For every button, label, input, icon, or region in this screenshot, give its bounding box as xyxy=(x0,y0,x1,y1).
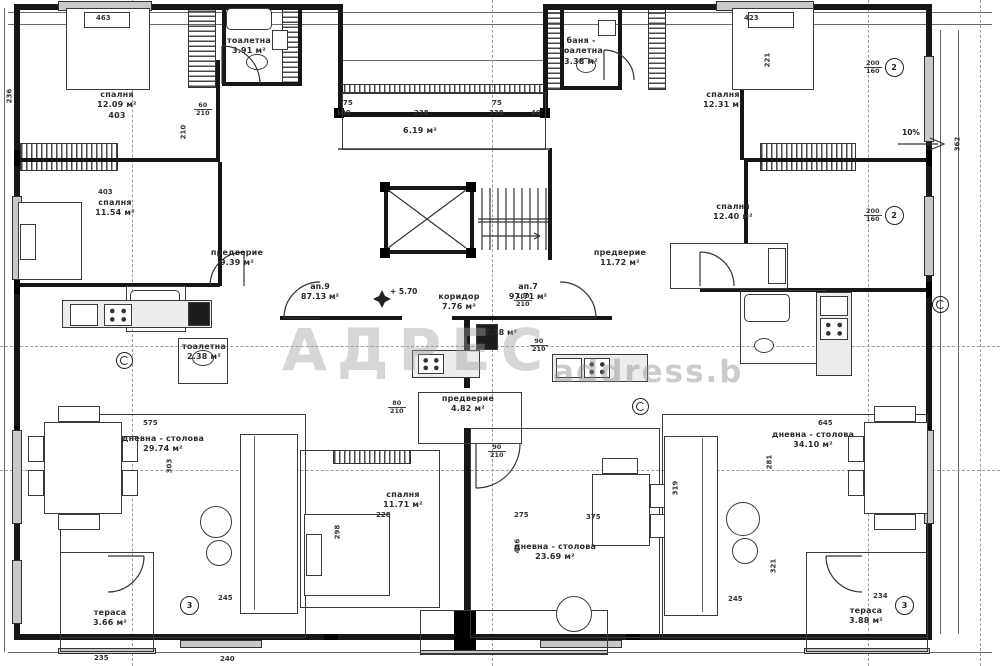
level-marker-label: + 5.70 xyxy=(390,287,417,296)
apartment-label-87-18: 87.18 м² xyxy=(470,328,526,338)
dim-label: 423 xyxy=(744,14,759,22)
dim-label: 234 xyxy=(873,592,888,600)
window-ref-bubble: 2 xyxy=(885,206,904,225)
slope-arrow xyxy=(898,138,944,150)
room-label-terrace-right: тераса 3.88 м² xyxy=(838,606,894,627)
dim-label: 319 xyxy=(671,481,679,496)
apartment-label-ap7: ап.7 97.71 м² xyxy=(500,282,556,303)
dim-label: 463 xyxy=(96,14,111,22)
room-label-entry-9-39: предверие 9.39 м² xyxy=(206,248,268,269)
level-marker-icon xyxy=(373,290,391,308)
dim-label: 238 xyxy=(414,109,429,117)
room-label-living-29-74: дневна - столова 29.74 м² xyxy=(116,434,210,455)
dim-label: 245 xyxy=(728,595,743,603)
room-label-bedroom-11-71: спалня 11.71 м² xyxy=(372,490,434,511)
door-size-label: 90210 xyxy=(488,444,506,460)
room-label-living-23-69: дневна - столова 23.69 м² xyxy=(508,542,602,563)
dim-label: 298 xyxy=(333,525,341,540)
dim-label: 338 xyxy=(489,109,504,117)
dim-label: 275 xyxy=(514,511,529,519)
room-label-wc-3-91: тоалетна 3.91 м² xyxy=(220,36,278,57)
window-ref-bubble: 2 xyxy=(885,58,904,77)
slope-label: 10% xyxy=(902,128,920,137)
dim-label: 403 xyxy=(98,188,113,196)
dim-label: 321 xyxy=(769,559,777,574)
dim-label: 303 xyxy=(165,459,173,474)
dim-label: 240 xyxy=(220,655,235,663)
room-label-bedroom-11-54: спалня 11.54 м² xyxy=(84,198,146,219)
room-label-bedroom-12-31: спалня 12.31 м² xyxy=(692,90,754,111)
floor-plan-canvas: спалня 12.09 м² 403 тоалетна 3.91 м² спа… xyxy=(0,0,1000,666)
room-label-bedroom-12-09: спалня 12.09 м² 403 xyxy=(86,90,148,121)
dim-label: 228 xyxy=(376,511,391,519)
window-mark: 200160 2 xyxy=(864,58,904,77)
dim-label: 236 xyxy=(5,89,13,104)
dim-label: 235 xyxy=(94,654,109,662)
dim-label: 375 xyxy=(586,513,601,521)
dim-label: 40 xyxy=(531,109,541,117)
room-label-bedroom-12-40: спалня 12.40 м² xyxy=(702,202,764,223)
room-label-entry-11-72: предверие 11.72 м² xyxy=(588,248,652,269)
room-label-wc-2-38: тоалетна 2.38 м² xyxy=(176,342,232,363)
elevator-cross xyxy=(388,190,466,248)
window-mark: 200160 2 xyxy=(864,206,904,225)
dim-label: 100 xyxy=(336,109,351,117)
dim-label: 575 xyxy=(143,419,158,427)
dim-label: 362 xyxy=(953,137,961,152)
room-label-living-34-10: дневна - столова 34.10 м² xyxy=(766,430,860,451)
stairs xyxy=(478,188,548,250)
window-ref-bubble: 3 xyxy=(895,596,914,615)
window-ref-bubble: 3 xyxy=(180,596,199,615)
room-label-entry-4-82: предверие 4.82 м² xyxy=(436,394,500,415)
door-size-label: 60210 xyxy=(194,102,212,118)
room-label-terrace-left: тераса 3.66 м² xyxy=(82,608,138,629)
dim-label: 210 xyxy=(179,125,187,140)
dim-label: 75 xyxy=(492,99,502,107)
door-arcs xyxy=(108,46,862,592)
dim-label: 245 xyxy=(218,594,233,602)
window-size-label: 200160 xyxy=(864,60,882,76)
room-label-corridor-7-76: коридор 7.76 м² xyxy=(430,292,488,313)
door-size-label: 90210 xyxy=(530,338,548,354)
dim-label: 645 xyxy=(818,419,833,427)
apartment-label-ap9: ап.9 87.13 м² xyxy=(292,282,348,303)
room-label-bath-3-38: баня - тоалетна 3.38 м² xyxy=(544,36,618,67)
dim-label: 281 xyxy=(765,455,773,470)
dim-label: 221 xyxy=(763,53,771,68)
door-size-label: 80210 xyxy=(388,400,406,416)
room-label-6-19: 6.19 м² xyxy=(392,126,448,136)
dim-label: 75 xyxy=(343,99,353,107)
window-size-label: 200160 xyxy=(864,208,882,224)
